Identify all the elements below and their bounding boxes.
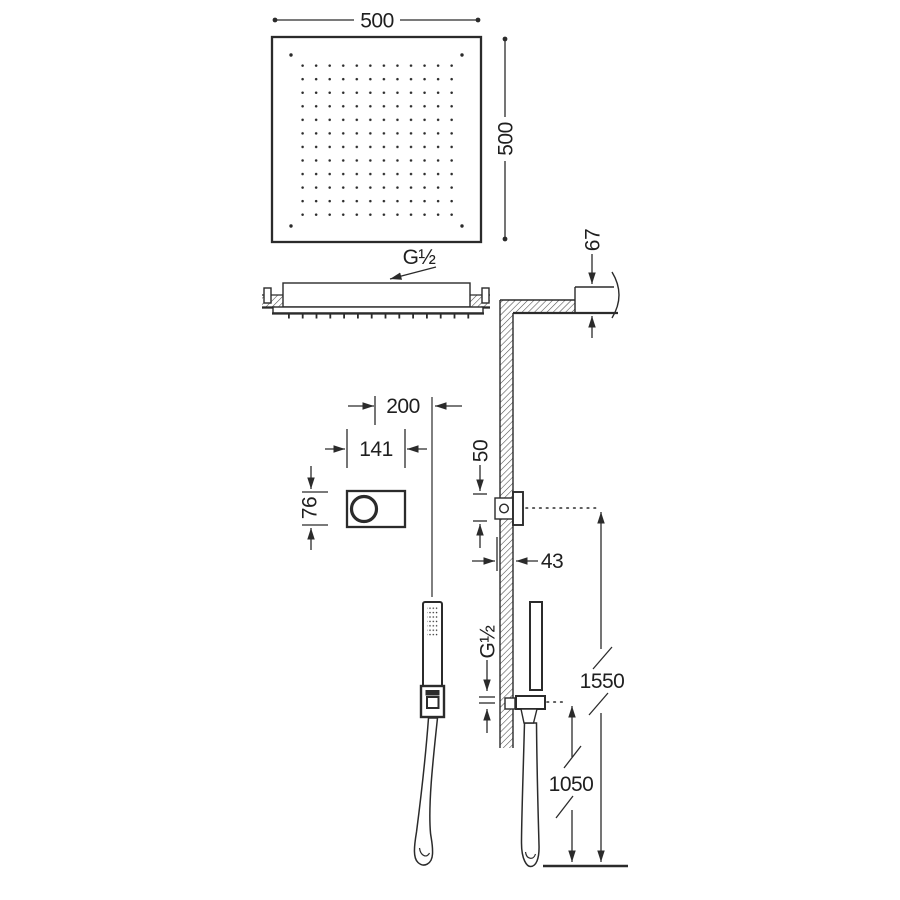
- dim-label-outlet-floor-height: 1550: [580, 670, 625, 693]
- dim-label-hand-thread: G½: [477, 626, 500, 659]
- dim-label-head-height: 500: [495, 122, 518, 156]
- diagram-canvas: 500 500 G½: [0, 0, 900, 900]
- face-plate: [273, 307, 483, 313]
- hose-side: [522, 723, 540, 867]
- dim-label-ceiling-clearance: 67: [582, 229, 605, 251]
- dim-outlet-depth-43: 43: [472, 537, 563, 573]
- dim-1050: 1050: [549, 706, 594, 862]
- dim-label-head-width: 500: [360, 10, 394, 33]
- dim-dot: [476, 18, 481, 23]
- control-unit: [347, 491, 405, 527]
- hand-shower-front: [414, 602, 444, 865]
- dim-dot: [273, 18, 278, 23]
- wall-hatch: [500, 300, 513, 748]
- outlet-plate: [513, 492, 523, 525]
- g-half-leader: G½: [390, 246, 436, 279]
- nozzle-grid: [300, 63, 453, 216]
- hose-cone: [521, 709, 537, 723]
- technical-drawing-page: 500 500 G½: [0, 0, 900, 900]
- recessed-housing-side-view: [262, 283, 490, 317]
- dim-dot: [503, 37, 508, 42]
- dim-g-half-outlet: G½: [477, 626, 500, 733]
- dim-200: 200: [348, 395, 462, 425]
- dim-outlet-50: 50: [470, 440, 493, 548]
- bracket-clamp: [426, 690, 440, 696]
- dim-label-handset-floor-height: 1050: [549, 773, 594, 796]
- mounting-clip-right: [482, 288, 489, 303]
- dim-1550: 1550: [580, 512, 625, 862]
- control-knob: [352, 497, 377, 522]
- hose-wall-union: [505, 698, 515, 709]
- handset-spray-face: [427, 607, 439, 638]
- dim-label-control-width: 141: [359, 438, 393, 461]
- corner-screw: [289, 224, 292, 227]
- corner-screw: [460, 224, 463, 227]
- outlet-port: [500, 504, 509, 513]
- corner-screw: [460, 53, 463, 56]
- dim-dot: [503, 237, 508, 242]
- dim-label-outlet-size: 50: [470, 440, 493, 462]
- dim-head-height: 500: [495, 37, 518, 242]
- bracket-opening: [427, 697, 439, 708]
- dim-label-control-offset: 200: [386, 395, 420, 418]
- dim-head-width: 500: [273, 10, 481, 33]
- dim-label-head-thread: G½: [403, 246, 436, 269]
- hose-front: [414, 718, 437, 865]
- dim-label-control-height: 76: [299, 497, 322, 519]
- wall-bracket-side: [516, 696, 545, 709]
- dim-76: 76: [299, 466, 329, 550]
- dim-label-outlet-depth: 43: [541, 550, 563, 573]
- handset-handle-side: [530, 602, 542, 690]
- dim-141: 141: [325, 429, 427, 468]
- rain-head-top-view: [272, 37, 481, 242]
- housing-body: [283, 283, 470, 307]
- mounting-clip-left: [264, 288, 271, 303]
- ceiling-hatch-corner: [502, 300, 575, 313]
- corner-screw: [289, 53, 292, 56]
